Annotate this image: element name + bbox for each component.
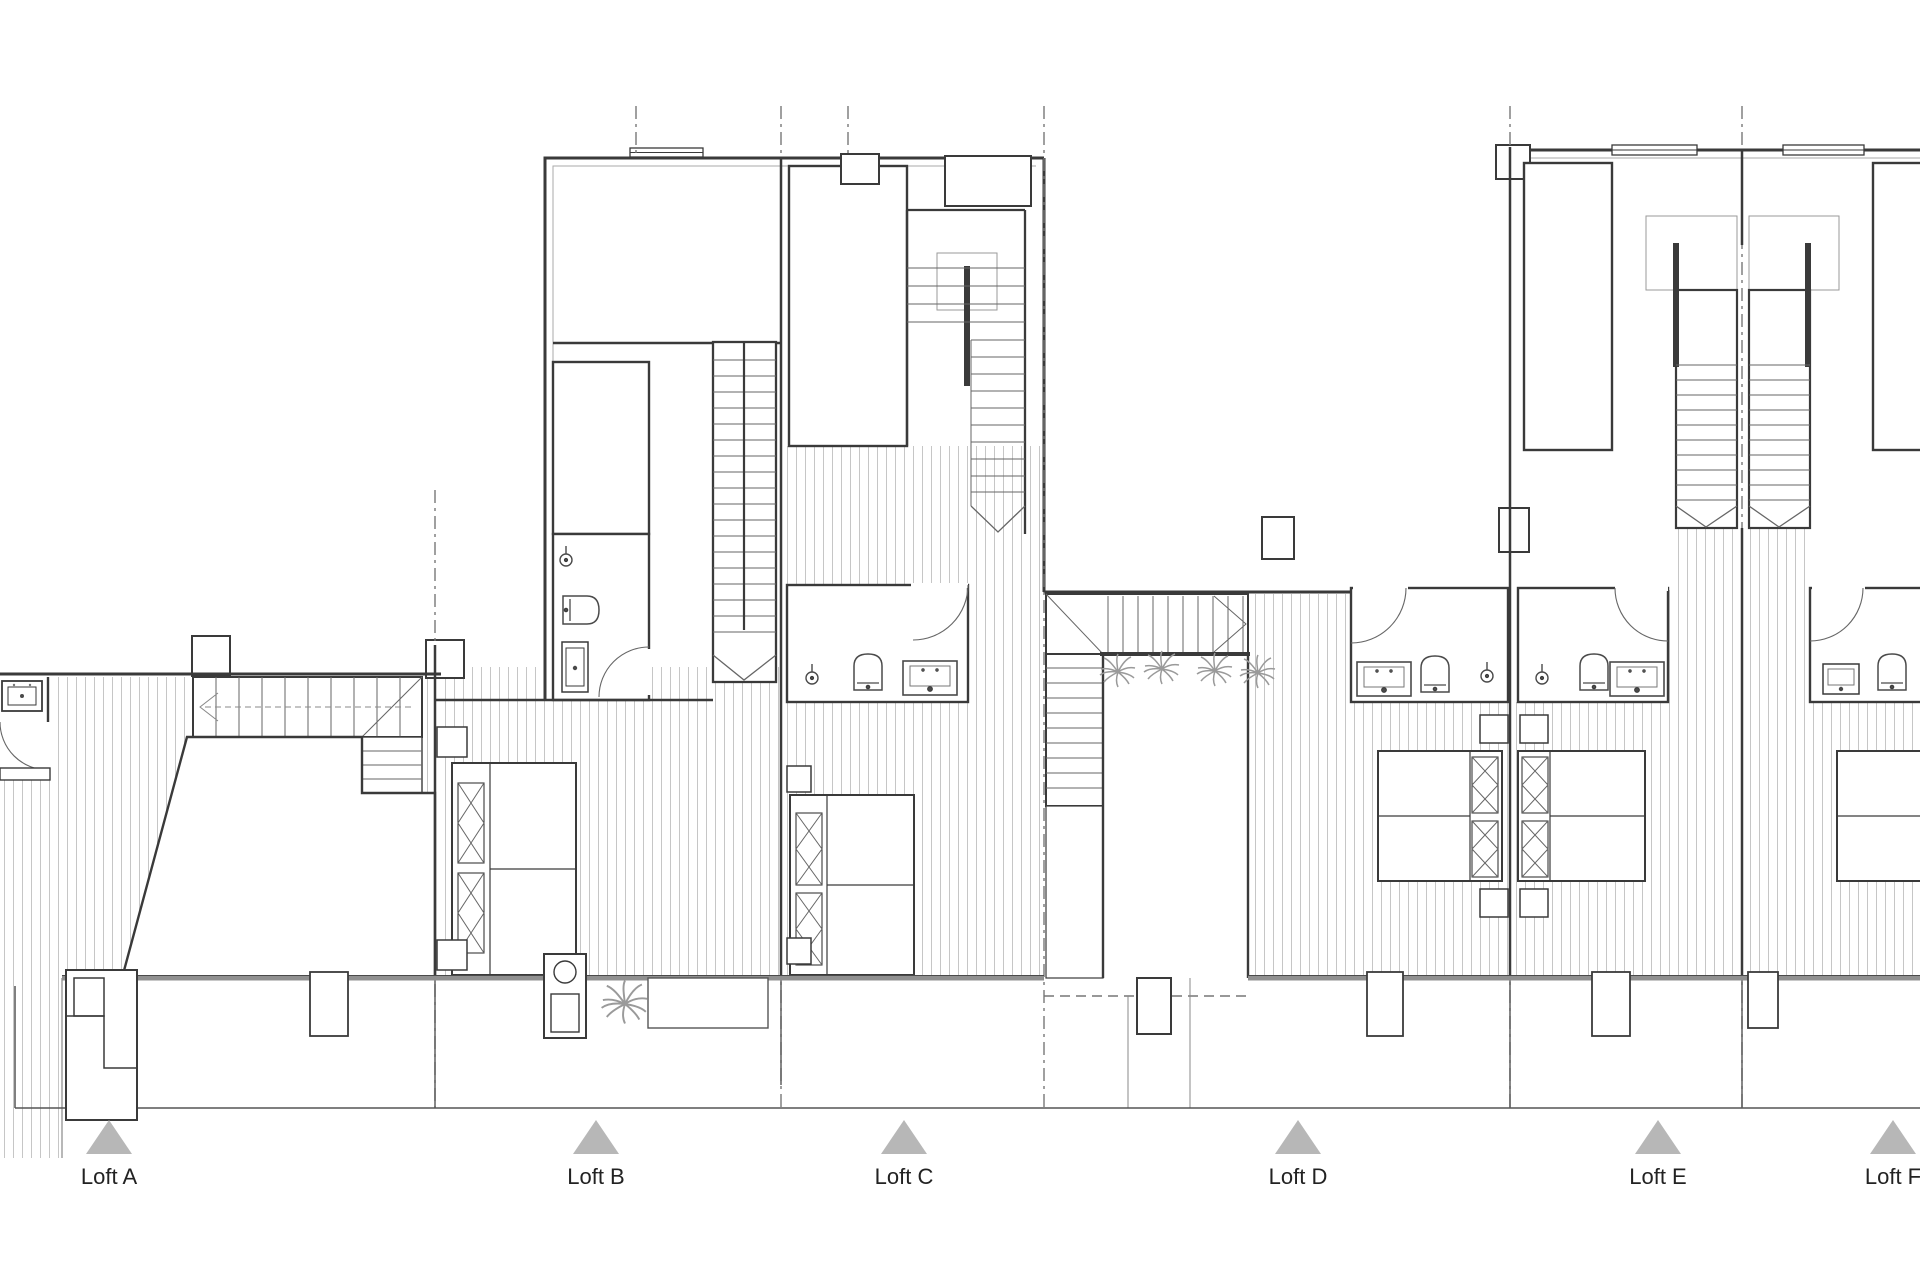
roof-box: [192, 636, 230, 676]
loft-e-bed: [1518, 751, 1645, 881]
planter-box: [1137, 978, 1171, 1034]
loft-d-bathroom: [1351, 586, 1508, 702]
nightstand: [787, 938, 811, 964]
loft-a-label: Loft A: [29, 1164, 189, 1190]
loft-f-marker-icon: [1870, 1120, 1916, 1154]
loft-f-bathroom: [1810, 586, 1920, 702]
loft-f-room: [1873, 163, 1920, 450]
loft-c-room: [789, 166, 907, 446]
threshold-box: [310, 972, 348, 1036]
loft-e-bathroom: [1518, 586, 1668, 702]
nightstand: [787, 766, 811, 792]
loft-e-room: [1524, 163, 1612, 450]
roof-box: [1262, 517, 1294, 559]
roof-box: [1499, 508, 1529, 552]
nightstand: [437, 940, 467, 970]
loft-a-marker-icon: [86, 1120, 132, 1154]
loft-c-marker-icon: [881, 1120, 927, 1154]
terrace-wc: [544, 954, 586, 1038]
loft-d-label: Loft D: [1218, 1164, 1378, 1190]
loft-b-label: Loft B: [516, 1164, 676, 1190]
nightstand: [437, 727, 467, 757]
loft-e-marker-icon: [1635, 1120, 1681, 1154]
nightstand: [1520, 889, 1548, 917]
terrace-bench: [648, 978, 768, 1028]
loft-b-stair-icon: [713, 342, 776, 682]
loft-f-bed: [1837, 751, 1920, 881]
floor-plan-drawing: [0, 0, 1920, 1280]
loft-c-bathroom: [787, 583, 968, 702]
roof-box: [945, 156, 1031, 206]
loft-b-bed: [452, 763, 576, 975]
floor-plan-page: Upper Floor: [0, 0, 1920, 1280]
roof-box: [841, 154, 879, 184]
loft-e-label: Loft E: [1578, 1164, 1738, 1190]
nightstand: [1480, 889, 1508, 917]
roof-box: [426, 640, 464, 678]
loft-b-marker-icon: [573, 1120, 619, 1154]
loft-b-bathroom: [553, 534, 651, 700]
nightstand: [1520, 715, 1548, 743]
loft-d-bed: [1378, 751, 1502, 881]
nightstand: [1480, 715, 1508, 743]
entry-steps: [66, 970, 137, 1120]
loft-c-label: Loft C: [824, 1164, 984, 1190]
loft-d-marker-icon: [1275, 1120, 1321, 1154]
loft-a-bathroom: [0, 677, 52, 780]
loft-f-label: Loft F: [1813, 1164, 1920, 1190]
threshold-box: [1367, 972, 1403, 1036]
threshold-box: [1748, 972, 1778, 1028]
threshold-box: [1592, 972, 1630, 1036]
loft-b-closet: [553, 362, 649, 534]
